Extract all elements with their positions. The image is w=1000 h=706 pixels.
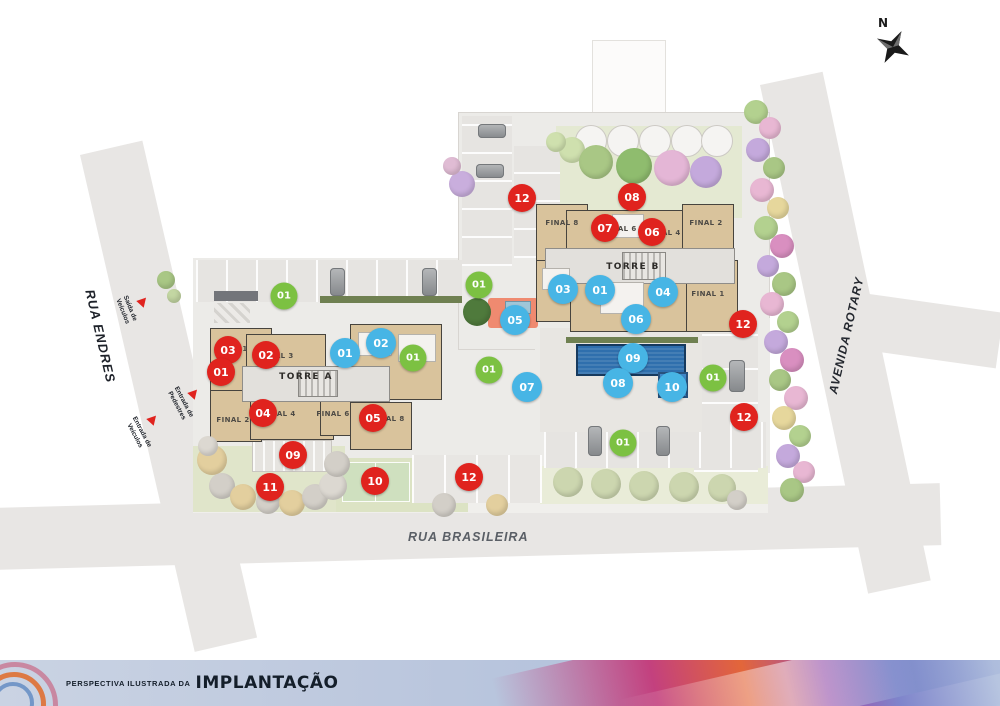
unit-label: FINAL 6 xyxy=(316,410,349,418)
parked-car xyxy=(330,268,345,296)
marker-blue-07: 07 xyxy=(512,372,542,402)
marker-blue-03: 03 xyxy=(548,274,578,304)
tree xyxy=(669,472,699,502)
tree xyxy=(553,467,583,497)
parked-car xyxy=(729,360,745,392)
marker-red-11: 11 xyxy=(256,473,284,501)
marker-red-12: 12 xyxy=(729,310,757,338)
tree xyxy=(591,469,621,499)
unit-label: FINAL 2 xyxy=(216,416,249,424)
flower-shrub xyxy=(780,348,804,372)
banner-caption-title: IMPLANTAÇÃO xyxy=(196,673,339,693)
marker-red-10: 10 xyxy=(361,467,389,495)
flower-shrub xyxy=(770,234,794,258)
marker-blue-08: 08 xyxy=(603,368,633,398)
tree xyxy=(463,298,491,326)
tree xyxy=(546,132,566,152)
tree xyxy=(198,436,218,456)
flower-shrub xyxy=(759,117,781,139)
tree xyxy=(727,490,747,510)
parked-car xyxy=(588,426,602,456)
marker-red-02: 02 xyxy=(252,341,280,369)
tree xyxy=(616,148,652,184)
hedge-courtyard xyxy=(320,296,462,303)
marker-red-04: 04 xyxy=(249,399,277,427)
marker-red-08: 08 xyxy=(618,183,646,211)
marker-green-01: 01 xyxy=(610,430,637,457)
unit-label: FINAL 1 xyxy=(691,290,724,298)
marker-red-06: 06 xyxy=(638,218,666,246)
parked-car xyxy=(422,268,437,296)
marker-green-01: 01 xyxy=(700,365,727,392)
tree xyxy=(629,471,659,501)
marker-red-09: 09 xyxy=(279,441,307,469)
marker-red-01: 01 xyxy=(207,358,235,386)
unit-label: FINAL 2 xyxy=(689,219,722,227)
compass-star-icon xyxy=(867,21,918,72)
banner-caption: PERSPECTIVA ILUSTRADA DA IMPLANTAÇÃO xyxy=(66,660,338,706)
tree xyxy=(324,451,350,477)
unit-label: FINAL 8 xyxy=(545,219,578,227)
marker-green-01: 01 xyxy=(476,357,503,384)
marker-blue-04: 04 xyxy=(648,277,678,307)
entrance-canopy xyxy=(214,291,258,301)
tree xyxy=(279,490,305,516)
parked-car xyxy=(476,164,504,178)
flower-shrub xyxy=(767,197,789,219)
flower-shrub xyxy=(789,425,811,447)
marker-blue-02: 02 xyxy=(366,328,396,358)
marker-blue-05: 05 xyxy=(500,305,530,335)
marker-blue-10: 10 xyxy=(657,372,687,402)
tree xyxy=(579,145,613,179)
banner-caption-prefix: PERSPECTIVA ILUSTRADA DA xyxy=(66,679,191,688)
garage-ramp xyxy=(214,303,250,323)
marker-green-01: 01 xyxy=(271,283,298,310)
parked-car xyxy=(656,426,670,456)
flower-shrub xyxy=(780,478,804,502)
tree xyxy=(157,271,175,289)
street-name-rua-brasileira: RUA BRASILEIRA xyxy=(408,530,528,544)
tree xyxy=(230,484,256,510)
tree xyxy=(486,494,508,516)
marker-red-05: 05 xyxy=(359,404,387,432)
site-plan-page: RUA ENDRES RUA BRASILEIRA AVENIDA ROTARY xyxy=(0,0,1000,706)
marker-red-07: 07 xyxy=(591,214,619,242)
footer-banner: PERSPECTIVA ILUSTRADA DA IMPLANTAÇÃO xyxy=(0,660,1000,706)
tower-name-label: TORRE A xyxy=(279,372,333,382)
marker-green-01: 01 xyxy=(466,272,493,299)
marker-blue-06: 06 xyxy=(621,304,651,334)
planter xyxy=(701,125,733,157)
flower-shrub xyxy=(763,157,785,179)
marker-red-12: 12 xyxy=(455,463,483,491)
parked-car xyxy=(478,124,506,138)
tower-name-label: TORRE B xyxy=(606,262,660,272)
compass: N xyxy=(868,16,918,76)
marker-blue-01: 01 xyxy=(585,275,615,305)
marker-red-12: 12 xyxy=(730,403,758,431)
tree xyxy=(443,157,461,175)
tree xyxy=(432,493,456,517)
tree xyxy=(167,289,181,303)
marker-green-01: 01 xyxy=(400,345,427,372)
flower-shrub xyxy=(777,311,799,333)
marker-red-12: 12 xyxy=(508,184,536,212)
marker-blue-01: 01 xyxy=(330,338,360,368)
tree xyxy=(690,156,722,188)
tree xyxy=(654,150,690,186)
